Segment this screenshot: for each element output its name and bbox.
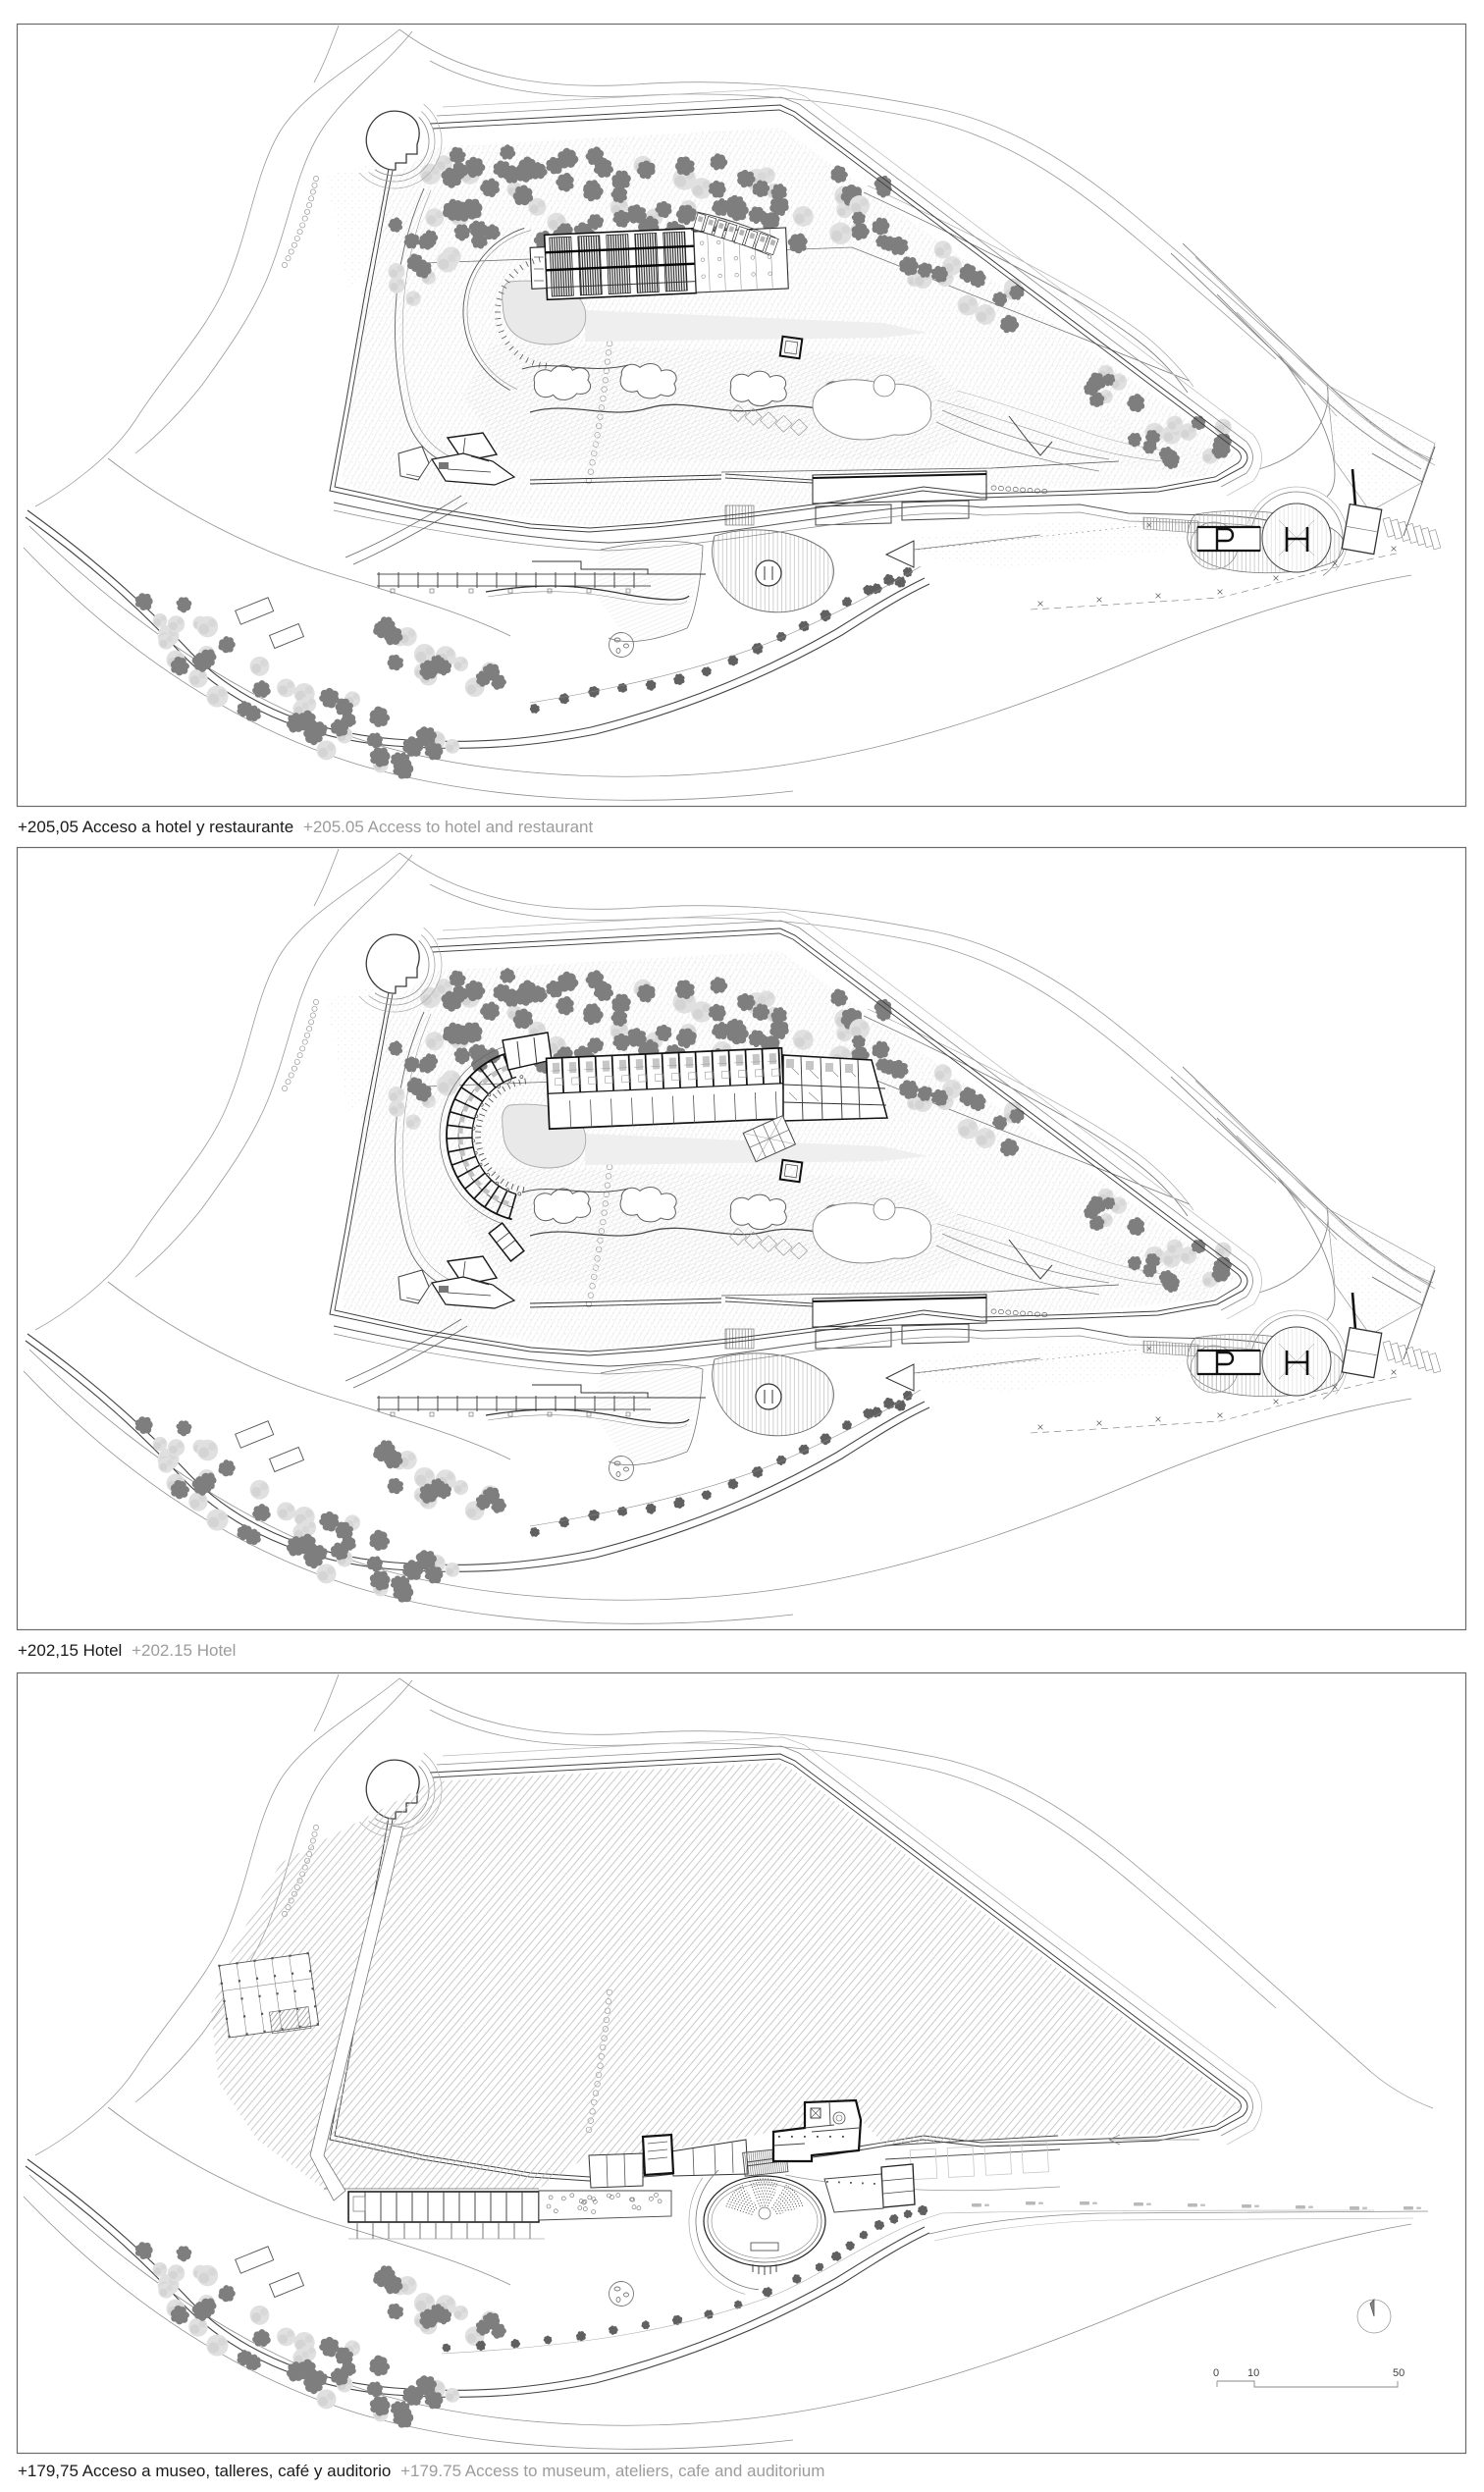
svg-text:+205,05 Acceso a hotel y resta: +205,05 Acceso a hotel y restaurante +20… xyxy=(18,818,594,836)
svg-text:+179,75 Acceso a museo, taller: +179,75 Acceso a museo, talleres, café y… xyxy=(18,2462,824,2480)
svg-text:0: 0 xyxy=(1213,2367,1219,2379)
svg-text:10: 10 xyxy=(1247,2367,1259,2379)
svg-text:+202,15 Hotel +202.15 Hotel: +202,15 Hotel +202.15 Hotel xyxy=(18,1641,236,1660)
svg-text:50: 50 xyxy=(1393,2367,1404,2379)
